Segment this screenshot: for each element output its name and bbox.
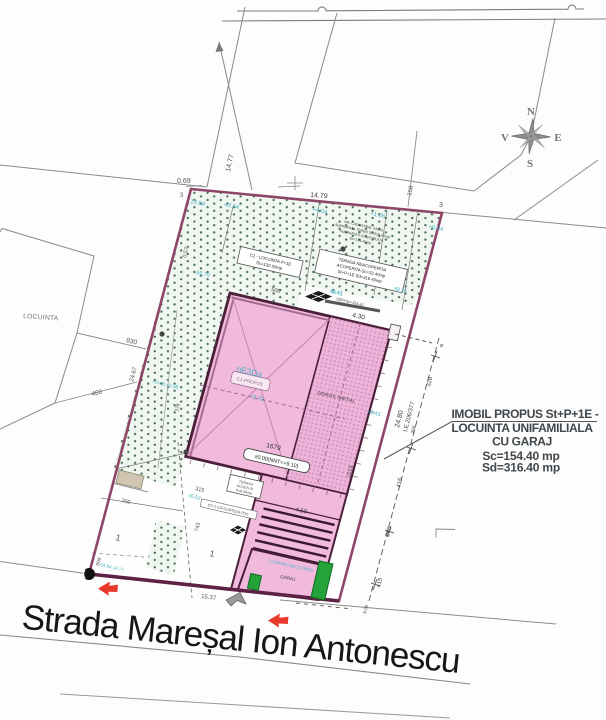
svg-text:IMOBIL PROPUS St+P+1E -: IMOBIL PROPUS St+P+1E - bbox=[451, 407, 598, 421]
svg-text:LOCUINTA UNIFAMILIALA: LOCUINTA UNIFAMILIALA bbox=[451, 421, 593, 435]
svg-text:0.69: 0.69 bbox=[177, 178, 191, 185]
svg-text:N: N bbox=[527, 106, 535, 118]
svg-text:CU GARAJ: CU GARAJ bbox=[492, 435, 552, 449]
svg-text:3: 3 bbox=[439, 202, 443, 209]
svg-text:S: S bbox=[527, 158, 533, 170]
svg-text:V: V bbox=[501, 132, 509, 144]
svg-text:Sd=316.40 mp: Sd=316.40 mp bbox=[482, 461, 560, 475]
svg-text:14.79: 14.79 bbox=[310, 192, 328, 200]
svg-text:ø: ø bbox=[440, 343, 443, 349]
svg-text:E: E bbox=[554, 132, 561, 144]
